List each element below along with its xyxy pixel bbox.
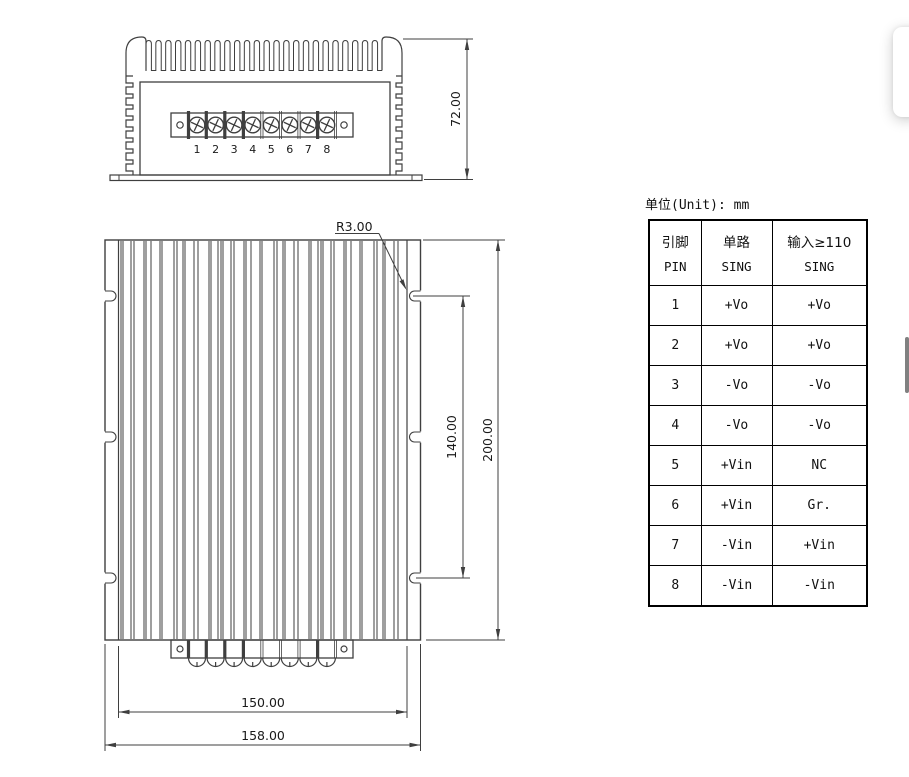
- floating-panel[interactable]: [893, 27, 909, 117]
- notch-edge-gap: [103, 290, 106, 301]
- divider-bar: [205, 640, 208, 658]
- notch-edge-gap: [103, 431, 106, 442]
- screw-cross: [207, 116, 224, 133]
- pin-number-label: 8: [323, 143, 330, 156]
- sing-cell: +Vin: [701, 446, 772, 486]
- pin-number-label: 1: [194, 143, 201, 156]
- dim-label-150: 150.00: [241, 695, 285, 710]
- fin: [225, 41, 230, 72]
- sing-cell: -Vo: [701, 406, 772, 446]
- dim-label-200: 200.00: [480, 418, 495, 462]
- pin-row: 4 -Vo -Vo: [649, 406, 867, 446]
- sing-cell: -Vo: [701, 366, 772, 406]
- dimension-arrow: [496, 629, 500, 640]
- sing-cell: -Vin: [701, 566, 772, 607]
- divider-bar: [223, 111, 226, 139]
- input110-cell: -Vin: [772, 566, 867, 607]
- input110-cell: +Vo: [772, 326, 867, 366]
- pin-cell: 5: [649, 446, 701, 486]
- heatsink-left-profile: [126, 37, 146, 175]
- dim-label-140: 140.00: [444, 415, 459, 459]
- dim-label-158: 158.00: [241, 728, 285, 743]
- divider-bar: [316, 111, 319, 139]
- block-end-hole: [177, 646, 183, 652]
- divider-bar: [242, 111, 245, 139]
- top-view-outline: [105, 240, 421, 640]
- pin-number-label: 6: [286, 143, 293, 156]
- dimension-arrow: [410, 743, 421, 747]
- pin-cell: 4: [649, 406, 701, 446]
- screw-cross: [300, 116, 317, 133]
- block-end-hole: [341, 646, 347, 652]
- pin-number-label: 2: [212, 143, 219, 156]
- header-pin: 引脚 PIN: [649, 220, 701, 286]
- header-single-en: SING: [702, 259, 772, 274]
- heatsink-right-profile: [382, 37, 402, 175]
- pin-row: 1 +Vo +Vo: [649, 286, 867, 326]
- pin-number-label: 5: [268, 143, 275, 156]
- dim-label-72: 72.00: [448, 91, 463, 127]
- input110-cell: -Vo: [772, 406, 867, 446]
- pin-cell: 7: [649, 526, 701, 566]
- screw-cross: [263, 116, 280, 133]
- pin-number-label: 3: [231, 143, 238, 156]
- fin: [195, 41, 200, 72]
- header-input110: 输入≥110 SING: [772, 220, 867, 286]
- header-pin-en: PIN: [650, 259, 701, 274]
- screw-cross: [225, 116, 242, 133]
- pin-row: 7 -Vin +Vin: [649, 526, 867, 566]
- fin: [323, 41, 328, 72]
- notch-edge-gap: [103, 572, 106, 583]
- fin: [362, 41, 367, 72]
- fin: [294, 41, 299, 72]
- sing-cell: -Vin: [701, 526, 772, 566]
- fin: [205, 41, 210, 72]
- fin: [166, 41, 171, 72]
- input110-cell: +Vin: [772, 526, 867, 566]
- fin: [353, 41, 358, 72]
- input110-cell: +Vo: [772, 286, 867, 326]
- pin-cell: 2: [649, 326, 701, 366]
- pin-table: 引脚 PIN 单路 SING 输入≥110 SING 1 +Vo +Vo 2 +…: [648, 219, 868, 607]
- pin-row: 6 +Vin Gr.: [649, 486, 867, 526]
- pin-cell: 3: [649, 366, 701, 406]
- fin: [185, 41, 190, 72]
- divider-bar: [242, 640, 245, 658]
- pin-number-label: 7: [305, 143, 312, 156]
- header-pin-cn: 引脚: [650, 231, 701, 251]
- divider-bar: [187, 111, 190, 139]
- fin: [284, 41, 289, 72]
- fin: [372, 41, 377, 72]
- fin: [235, 41, 240, 72]
- screw-cross: [281, 116, 298, 133]
- dimension-arrow: [119, 710, 130, 714]
- scrollbar-thumb[interactable]: [905, 337, 909, 393]
- dimension-arrow: [461, 567, 465, 578]
- fin: [244, 41, 249, 72]
- dimension-arrow: [496, 240, 500, 251]
- divider-bar: [316, 640, 319, 658]
- drawing-geometry: 12345678: [103, 37, 505, 751]
- sing-cell: +Vo: [701, 286, 772, 326]
- screw-cross: [318, 116, 335, 133]
- divider-bar: [223, 640, 226, 658]
- dimension-arrow: [396, 710, 407, 714]
- fin: [264, 41, 269, 72]
- block-end-hole: [177, 122, 183, 128]
- fin: [343, 41, 348, 72]
- sing-cell: +Vo: [701, 326, 772, 366]
- pin-number-label: 4: [249, 143, 256, 156]
- pin-row: 8 -Vin -Vin: [649, 566, 867, 607]
- fin: [156, 41, 161, 72]
- dimension-arrow: [465, 169, 469, 180]
- fin: [176, 41, 181, 72]
- input110-cell: -Vo: [772, 366, 867, 406]
- header-single-cn: 单路: [702, 231, 772, 251]
- fin: [215, 41, 220, 72]
- fin: [254, 41, 259, 72]
- pin-row: 5 +Vin NC: [649, 446, 867, 486]
- sing-cell: +Vin: [701, 486, 772, 526]
- input110-cell: Gr.: [772, 486, 867, 526]
- pin-table-header-row: 引脚 PIN 单路 SING 输入≥110 SING: [649, 220, 867, 286]
- dimension-arrow: [461, 296, 465, 307]
- pin-row: 3 -Vo -Vo: [649, 366, 867, 406]
- pin-cell: 8: [649, 566, 701, 607]
- fin: [333, 41, 338, 72]
- dimension-arrow: [465, 39, 469, 50]
- header-input110-en: SING: [773, 259, 867, 274]
- pin-row: 2 +Vo +Vo: [649, 326, 867, 366]
- header-input110-cn: 输入≥110: [773, 231, 867, 251]
- screw-cross: [188, 116, 205, 133]
- fin: [303, 41, 308, 72]
- screw-cross: [244, 116, 261, 133]
- input110-cell: NC: [772, 446, 867, 486]
- unit-label: 单位(Unit): mm: [645, 194, 749, 213]
- divider-bar: [205, 111, 208, 139]
- block-end-hole: [341, 122, 347, 128]
- terminal-block-top: [171, 640, 353, 658]
- header-single: 单路 SING: [701, 220, 772, 286]
- fin: [313, 41, 318, 72]
- pin-cell: 1: [649, 286, 701, 326]
- base-flange: [110, 175, 422, 181]
- fin: [274, 41, 279, 72]
- radius-callout-label: R3.00: [336, 219, 373, 234]
- dimension-arrow: [105, 743, 116, 747]
- pin-cell: 6: [649, 486, 701, 526]
- divider-bar: [187, 640, 190, 658]
- notch-edge-gap: [419, 431, 422, 442]
- fin: [146, 41, 151, 72]
